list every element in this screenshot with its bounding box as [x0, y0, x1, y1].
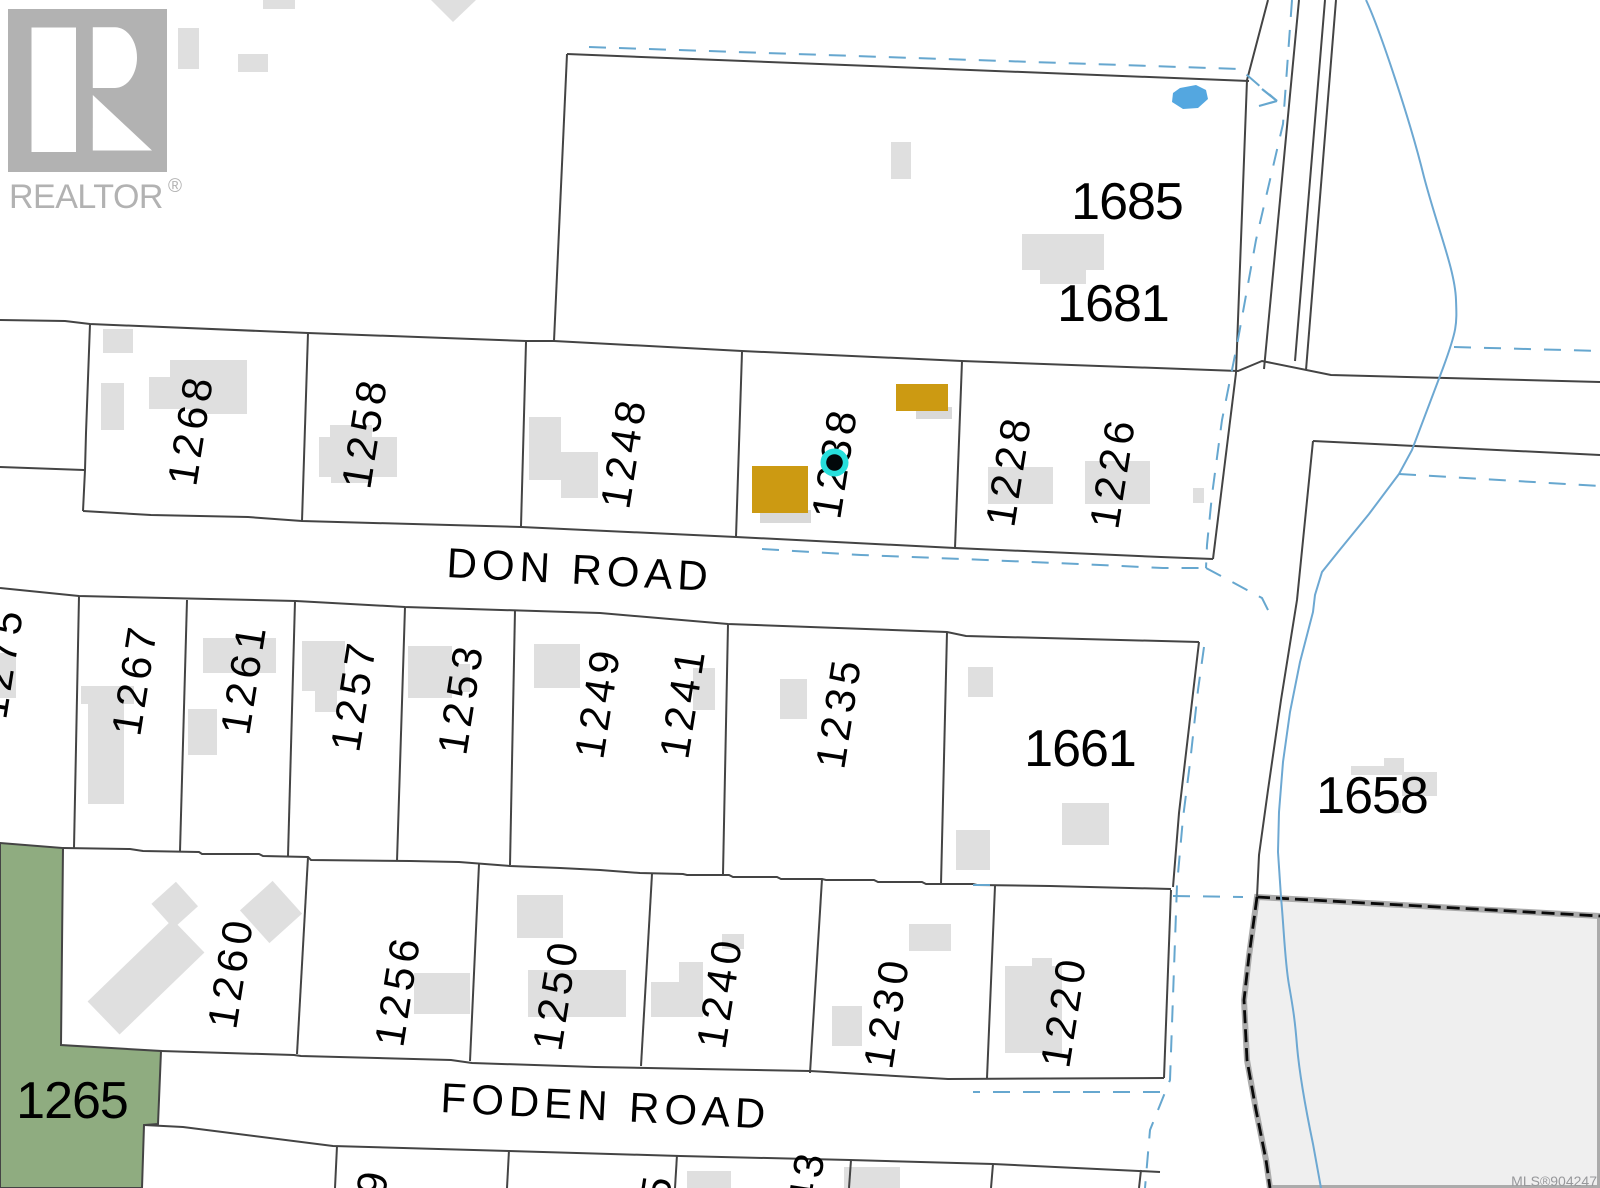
svg-text:1265: 1265: [16, 1072, 128, 1130]
svg-text:1681: 1681: [1057, 275, 1169, 333]
svg-text:1685: 1685: [1071, 173, 1183, 231]
svg-text:1661: 1661: [1024, 720, 1136, 778]
svg-text:1658: 1658: [1316, 767, 1428, 825]
svg-text:REALTOR: REALTOR: [9, 178, 163, 216]
svg-text:43: 43: [779, 1145, 834, 1188]
svg-text:MLS®904247: MLS®904247: [1511, 1173, 1597, 1188]
svg-text:®: ®: [168, 176, 182, 197]
